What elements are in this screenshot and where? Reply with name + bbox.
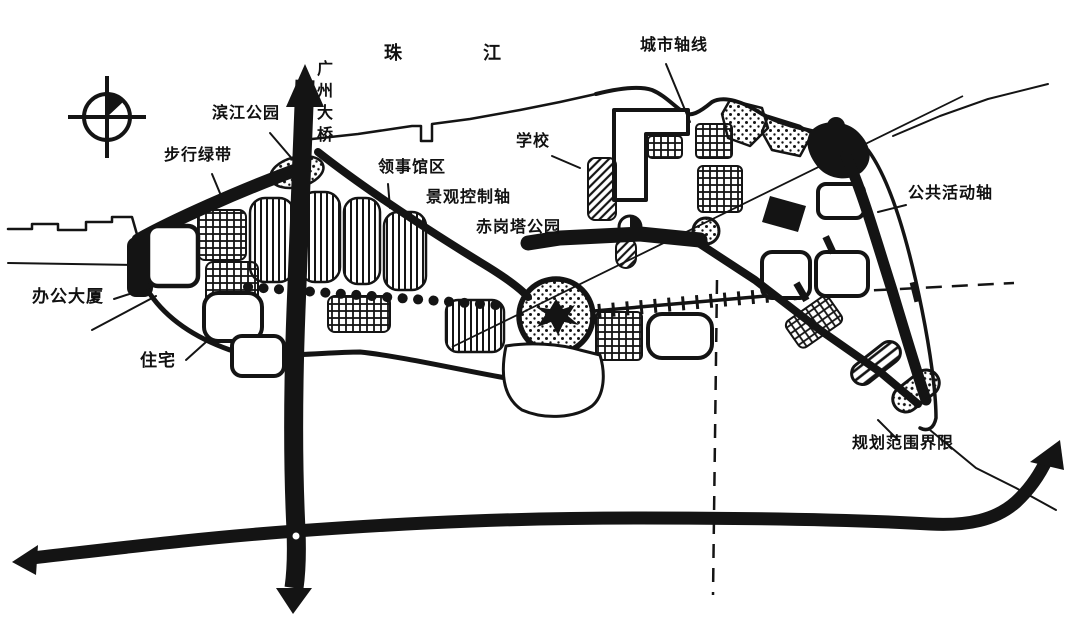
hatch-block xyxy=(648,136,682,158)
leader-binjiang-park xyxy=(270,133,294,161)
river-bank-line xyxy=(312,94,596,141)
hatch-block xyxy=(596,312,642,360)
intersection-dot xyxy=(293,533,300,540)
office-building-block xyxy=(148,226,198,286)
bridge-south-arrow xyxy=(276,588,312,614)
label-chigang-pagoda-park: 赤岗塔公园 xyxy=(476,220,561,236)
hatch-block xyxy=(328,296,390,332)
white-block xyxy=(648,314,712,358)
white-block xyxy=(816,252,868,296)
leader-school xyxy=(552,156,580,168)
label-guangzhou-bridge: 广州大桥 xyxy=(314,60,330,190)
label-pedestrian-green-belt: 步行绿带 xyxy=(164,148,232,164)
chigang-pagoda-park-circle xyxy=(519,279,593,353)
striped-block xyxy=(250,198,294,282)
hatch-block xyxy=(198,210,246,260)
planning-map: 珠 江 广州大桥 滨江公园 步行绿带 领事馆区 景观控制轴 赤岗塔公园 学校 城… xyxy=(0,0,1073,626)
label-public-activity-axis: 公共活动轴 xyxy=(908,186,993,202)
label-office-building: 办公大厦 xyxy=(32,288,104,305)
west-road-stub xyxy=(8,263,134,265)
residence-block xyxy=(204,293,262,341)
black-block xyxy=(762,196,806,232)
leader-public-axis xyxy=(878,205,906,212)
label-school: 学校 xyxy=(516,134,550,150)
map-drawing xyxy=(0,0,1073,626)
dark-knot-bump xyxy=(827,117,845,135)
south-trunk-road xyxy=(12,440,1064,575)
striped-block xyxy=(344,198,380,284)
stipple-wedge xyxy=(722,100,768,146)
south-lobe-block xyxy=(503,344,603,416)
leader-green-belt xyxy=(212,174,222,198)
hatch-block xyxy=(698,166,742,212)
leader-residence xyxy=(186,342,206,360)
label-binjiang-park: 滨江公园 xyxy=(212,106,280,122)
north-compass-icon xyxy=(68,76,146,158)
west-coastline xyxy=(8,217,138,238)
label-residence: 住宅 xyxy=(140,352,176,369)
residence-block xyxy=(232,336,284,376)
label-landscape-control-axis: 景观控制轴 xyxy=(426,190,511,206)
stipple-wedge xyxy=(762,116,812,156)
road-west-arrow xyxy=(12,545,38,575)
label-city-axis: 城市轴线 xyxy=(640,38,708,54)
road-east-arrow xyxy=(1030,440,1064,470)
label-planning-boundary: 规划范围界限 xyxy=(852,436,954,452)
label-pearl-river: 珠 江 xyxy=(384,44,539,62)
diagonal-hatch-block xyxy=(588,158,616,220)
label-consulate-district: 领事馆区 xyxy=(378,160,446,176)
northeast-boundary-line xyxy=(893,84,1048,136)
